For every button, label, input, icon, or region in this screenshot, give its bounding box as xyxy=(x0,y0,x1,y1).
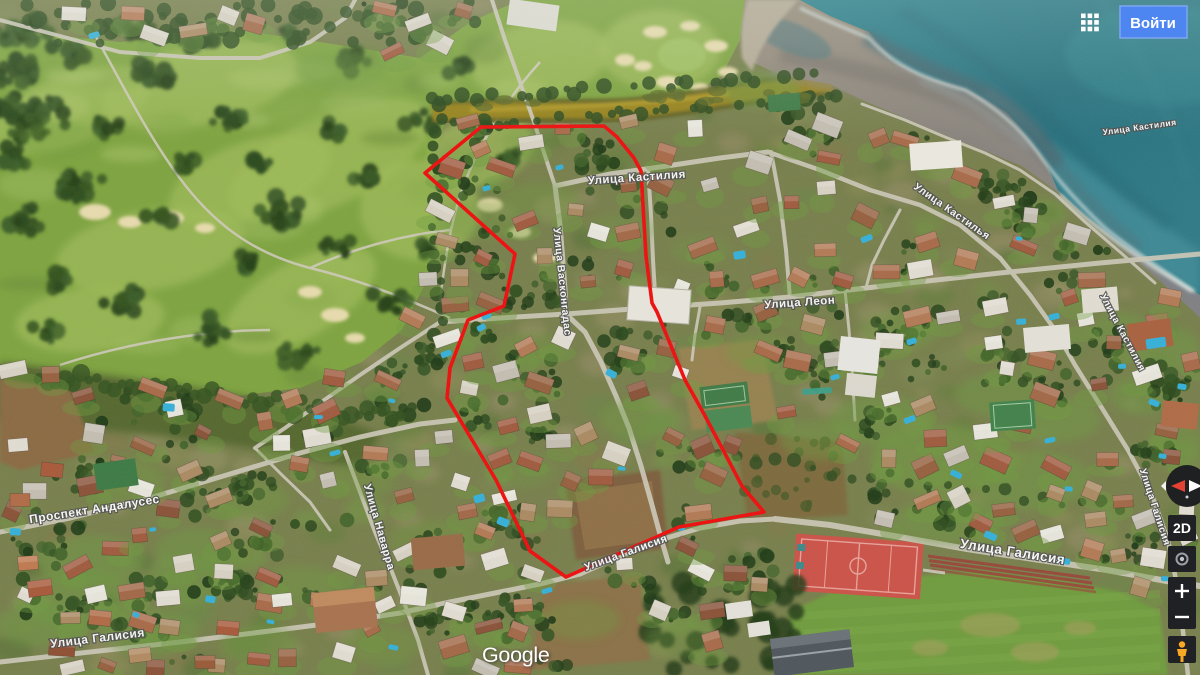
svg-text:2D: 2D xyxy=(1173,520,1191,536)
svg-text:Войти: Войти xyxy=(1130,15,1176,32)
svg-text:Google: Google xyxy=(482,643,550,667)
